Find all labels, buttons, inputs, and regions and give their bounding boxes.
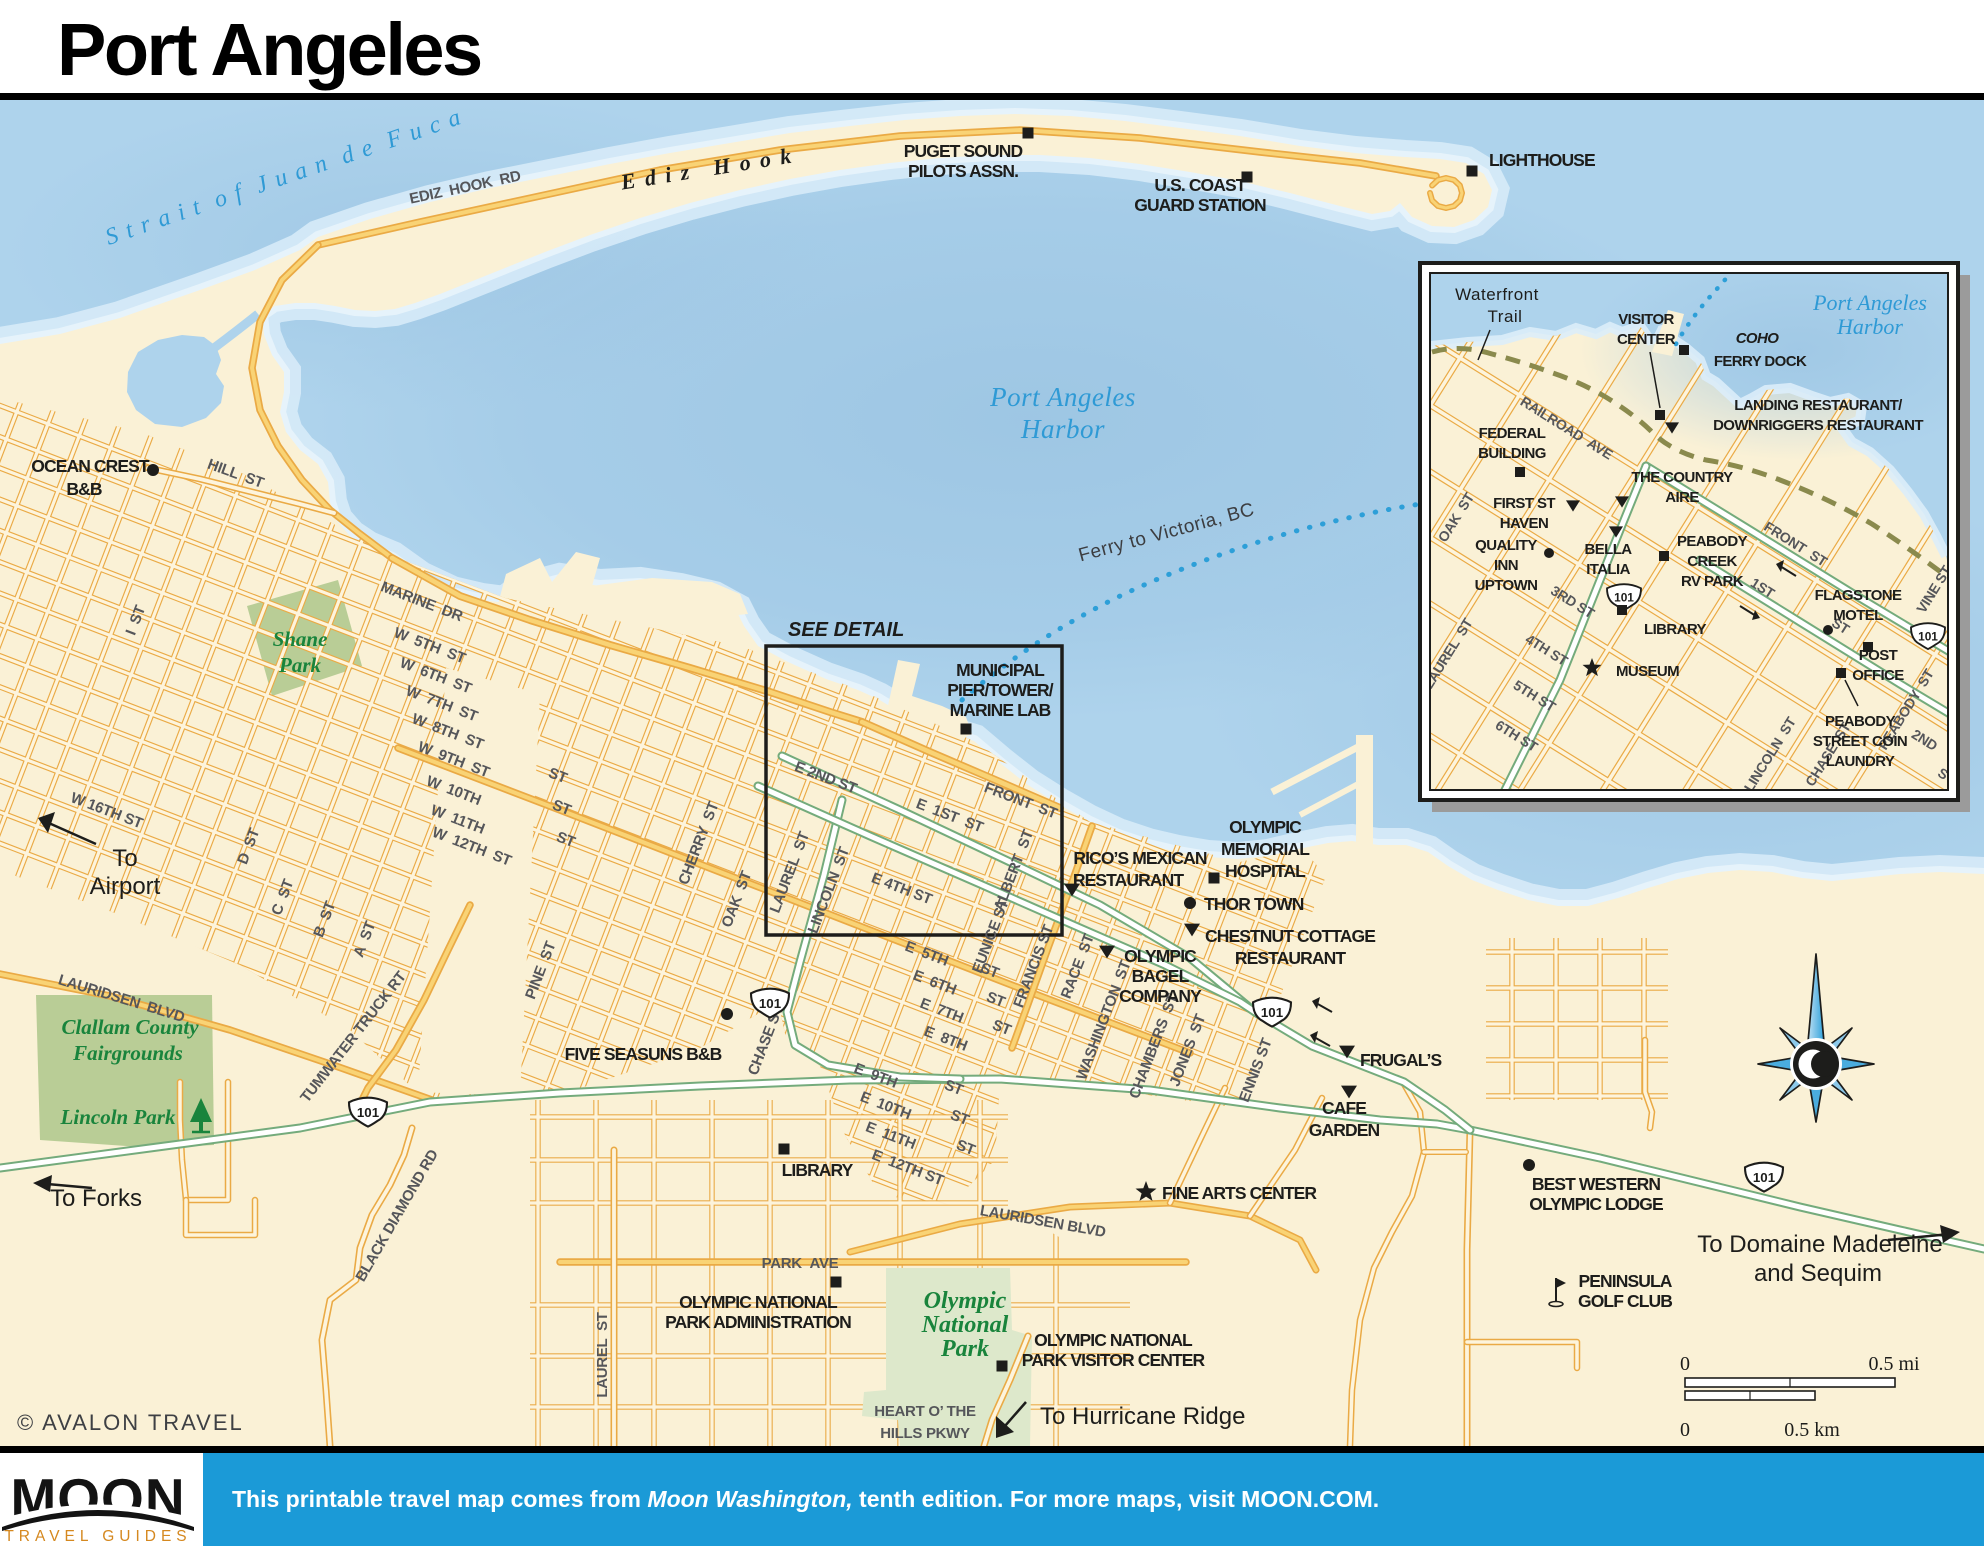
svg-text:ITALIA: ITALIA <box>1586 561 1630 578</box>
svg-text:BEST WESTERN: BEST WESTERN <box>1532 1174 1660 1194</box>
svg-text:AIRE: AIRE <box>1665 489 1699 506</box>
svg-text:MARINE LAB: MARINE LAB <box>950 700 1051 720</box>
svg-text:DOWNRIGGERS RESTAURANT: DOWNRIGGERS RESTAURANT <box>1713 417 1923 434</box>
svg-text:THOR TOWN: THOR TOWN <box>1204 894 1304 914</box>
svg-text:National: National <box>921 1312 1009 1338</box>
svg-text:MUSEUM: MUSEUM <box>1616 663 1679 680</box>
svg-text:QUALITY: QUALITY <box>1475 537 1537 554</box>
svg-text:To: To <box>112 845 137 872</box>
svg-text:RESTAURANT: RESTAURANT <box>1073 870 1184 890</box>
svg-text:U.S. COAST: U.S. COAST <box>1154 175 1246 195</box>
svg-text:PIER/TOWER/: PIER/TOWER/ <box>947 680 1054 700</box>
svg-text:PILOTS ASSN.: PILOTS ASSN. <box>908 161 1018 181</box>
svg-text:FLAGSTONE: FLAGSTONE <box>1815 587 1902 604</box>
svg-text:CAFE: CAFE <box>1322 1098 1366 1118</box>
svg-text:FERRY DOCK: FERRY DOCK <box>1714 353 1807 370</box>
svg-text:Park: Park <box>278 653 322 677</box>
svg-text:101: 101 <box>1753 1170 1776 1185</box>
svg-text:To Domaine Madeleine: To Domaine Madeleine <box>1697 1231 1942 1258</box>
svg-text:LAUNDRY: LAUNDRY <box>1826 753 1895 770</box>
svg-text:OLYMPIC NATIONAL: OLYMPIC NATIONAL <box>679 1292 838 1312</box>
svg-text:Airport: Airport <box>90 873 161 900</box>
svg-text:Port Angeles: Port Angeles <box>57 8 481 91</box>
svg-text:STREET COIN: STREET COIN <box>1813 733 1907 750</box>
svg-text:Olympic: Olympic <box>924 1288 1007 1314</box>
svg-text:Park: Park <box>940 1336 989 1362</box>
svg-text:FIRST ST: FIRST ST <box>1493 495 1555 512</box>
svg-text:B&B: B&B <box>66 479 101 499</box>
svg-text:COMPANY: COMPANY <box>1119 986 1202 1006</box>
svg-text:CENTER: CENTER <box>1617 331 1676 348</box>
svg-text:Harbor: Harbor <box>1020 414 1105 444</box>
svg-text:Waterfront: Waterfront <box>1455 285 1539 304</box>
svg-text:This printable travel map come: This printable travel map comes from Moo… <box>232 1486 1379 1512</box>
svg-text:FIVE SEASUNS B&B: FIVE SEASUNS B&B <box>565 1044 722 1064</box>
svg-text:RESTAURANT: RESTAURANT <box>1235 948 1346 968</box>
svg-text:PARK VISITOR CENTER: PARK VISITOR CENTER <box>1022 1350 1206 1370</box>
svg-text:OLYMPIC: OLYMPIC <box>1229 817 1302 837</box>
svg-text:HILLS PKWY: HILLS PKWY <box>880 1425 970 1442</box>
svg-text:COHO: COHO <box>1736 330 1780 347</box>
svg-text:OLYMPIC LODGE: OLYMPIC LODGE <box>1529 1194 1663 1214</box>
svg-text:PARK AVE: PARK AVE <box>762 1255 839 1272</box>
svg-text:Shane: Shane <box>273 627 328 651</box>
svg-text:PENINSULA: PENINSULA <box>1578 1271 1672 1291</box>
svg-text:RICO’S MEXICAN: RICO’S MEXICAN <box>1073 848 1207 868</box>
svg-text:HOSPITAL: HOSPITAL <box>1225 861 1306 881</box>
svg-text:OCEAN CREST: OCEAN CREST <box>31 456 150 476</box>
svg-text:Port Angeles: Port Angeles <box>1812 290 1927 315</box>
svg-text:101: 101 <box>1261 1005 1284 1020</box>
svg-text:BAGEL: BAGEL <box>1132 966 1190 986</box>
svg-text:RV PARK: RV PARK <box>1681 573 1744 590</box>
svg-text:HEART O’ THE: HEART O’ THE <box>874 1403 976 1420</box>
svg-text:MUNICIPAL: MUNICIPAL <box>956 660 1045 680</box>
svg-text:Port Angeles: Port Angeles <box>989 382 1136 412</box>
svg-text:LIBRARY: LIBRARY <box>782 1160 854 1180</box>
svg-text:0: 0 <box>1680 1353 1690 1375</box>
svg-text:0: 0 <box>1680 1419 1690 1441</box>
svg-text:0.5 km: 0.5 km <box>1784 1419 1840 1441</box>
svg-text:MOTEL: MOTEL <box>1833 607 1883 624</box>
svg-text:GOLF CLUB: GOLF CLUB <box>1578 1291 1672 1311</box>
svg-text:FEDERAL: FEDERAL <box>1479 425 1546 442</box>
svg-text:101: 101 <box>759 996 782 1011</box>
svg-text:101: 101 <box>357 1105 380 1120</box>
svg-text:To Hurricane Ridge: To Hurricane Ridge <box>1040 1403 1245 1430</box>
svg-text:Lincoln Park: Lincoln Park <box>60 1105 176 1129</box>
svg-text:OLYMPIC NATIONAL: OLYMPIC NATIONAL <box>1034 1330 1193 1350</box>
svg-text:CHESTNUT COTTAGE: CHESTNUT COTTAGE <box>1205 926 1375 946</box>
svg-text:PEABODY: PEABODY <box>1677 533 1748 550</box>
svg-text:101: 101 <box>1918 630 1938 644</box>
svg-text:TRAVEL GUIDES: TRAVEL GUIDES <box>4 1528 191 1545</box>
svg-text:BUILDING: BUILDING <box>1478 445 1546 462</box>
svg-text:© AVALON TRAVEL: © AVALON TRAVEL <box>17 1410 244 1435</box>
svg-text:HAVEN: HAVEN <box>1500 515 1548 532</box>
svg-text:GUARD STATION: GUARD STATION <box>1134 195 1266 215</box>
svg-text:BELLA: BELLA <box>1585 541 1633 558</box>
svg-text:To Forks: To Forks <box>50 1185 142 1212</box>
svg-text:PEABODY: PEABODY <box>1825 713 1896 730</box>
svg-text:0.5 mi: 0.5 mi <box>1868 1353 1920 1375</box>
svg-text:THE COUNTRY: THE COUNTRY <box>1631 469 1733 486</box>
svg-text:101: 101 <box>1614 591 1634 605</box>
svg-text:Trail: Trail <box>1488 307 1523 326</box>
svg-text:LIBRARY: LIBRARY <box>1644 621 1707 638</box>
svg-text:SEE DETAIL: SEE DETAIL <box>788 619 904 641</box>
svg-text:UPTOWN: UPTOWN <box>1475 577 1538 594</box>
svg-text:LANDING RESTAURANT/: LANDING RESTAURANT/ <box>1734 397 1903 414</box>
svg-text:MEMORIAL: MEMORIAL <box>1221 839 1310 859</box>
svg-text:LAUREL ST: LAUREL ST <box>594 1312 611 1397</box>
svg-text:LIGHTHOUSE: LIGHTHOUSE <box>1489 150 1595 170</box>
svg-text:OFFICE: OFFICE <box>1852 667 1904 684</box>
svg-text:and Sequim: and Sequim <box>1754 1260 1882 1287</box>
svg-text:FINE ARTS CENTER: FINE ARTS CENTER <box>1162 1183 1317 1203</box>
svg-text:FRUGAL’S: FRUGAL’S <box>1360 1050 1442 1070</box>
svg-text:OLYMPIC: OLYMPIC <box>1124 946 1197 966</box>
svg-text:INN: INN <box>1494 557 1518 574</box>
svg-text:Fairgrounds: Fairgrounds <box>72 1041 183 1065</box>
svg-text:PARK ADMINISTRATION: PARK ADMINISTRATION <box>665 1312 851 1332</box>
svg-text:Harbor: Harbor <box>1836 314 1903 339</box>
svg-text:CREEK: CREEK <box>1687 553 1737 570</box>
svg-text:VISITOR: VISITOR <box>1618 311 1674 328</box>
svg-text:PUGET SOUND: PUGET SOUND <box>904 141 1023 161</box>
svg-text:GARDEN: GARDEN <box>1309 1120 1380 1140</box>
